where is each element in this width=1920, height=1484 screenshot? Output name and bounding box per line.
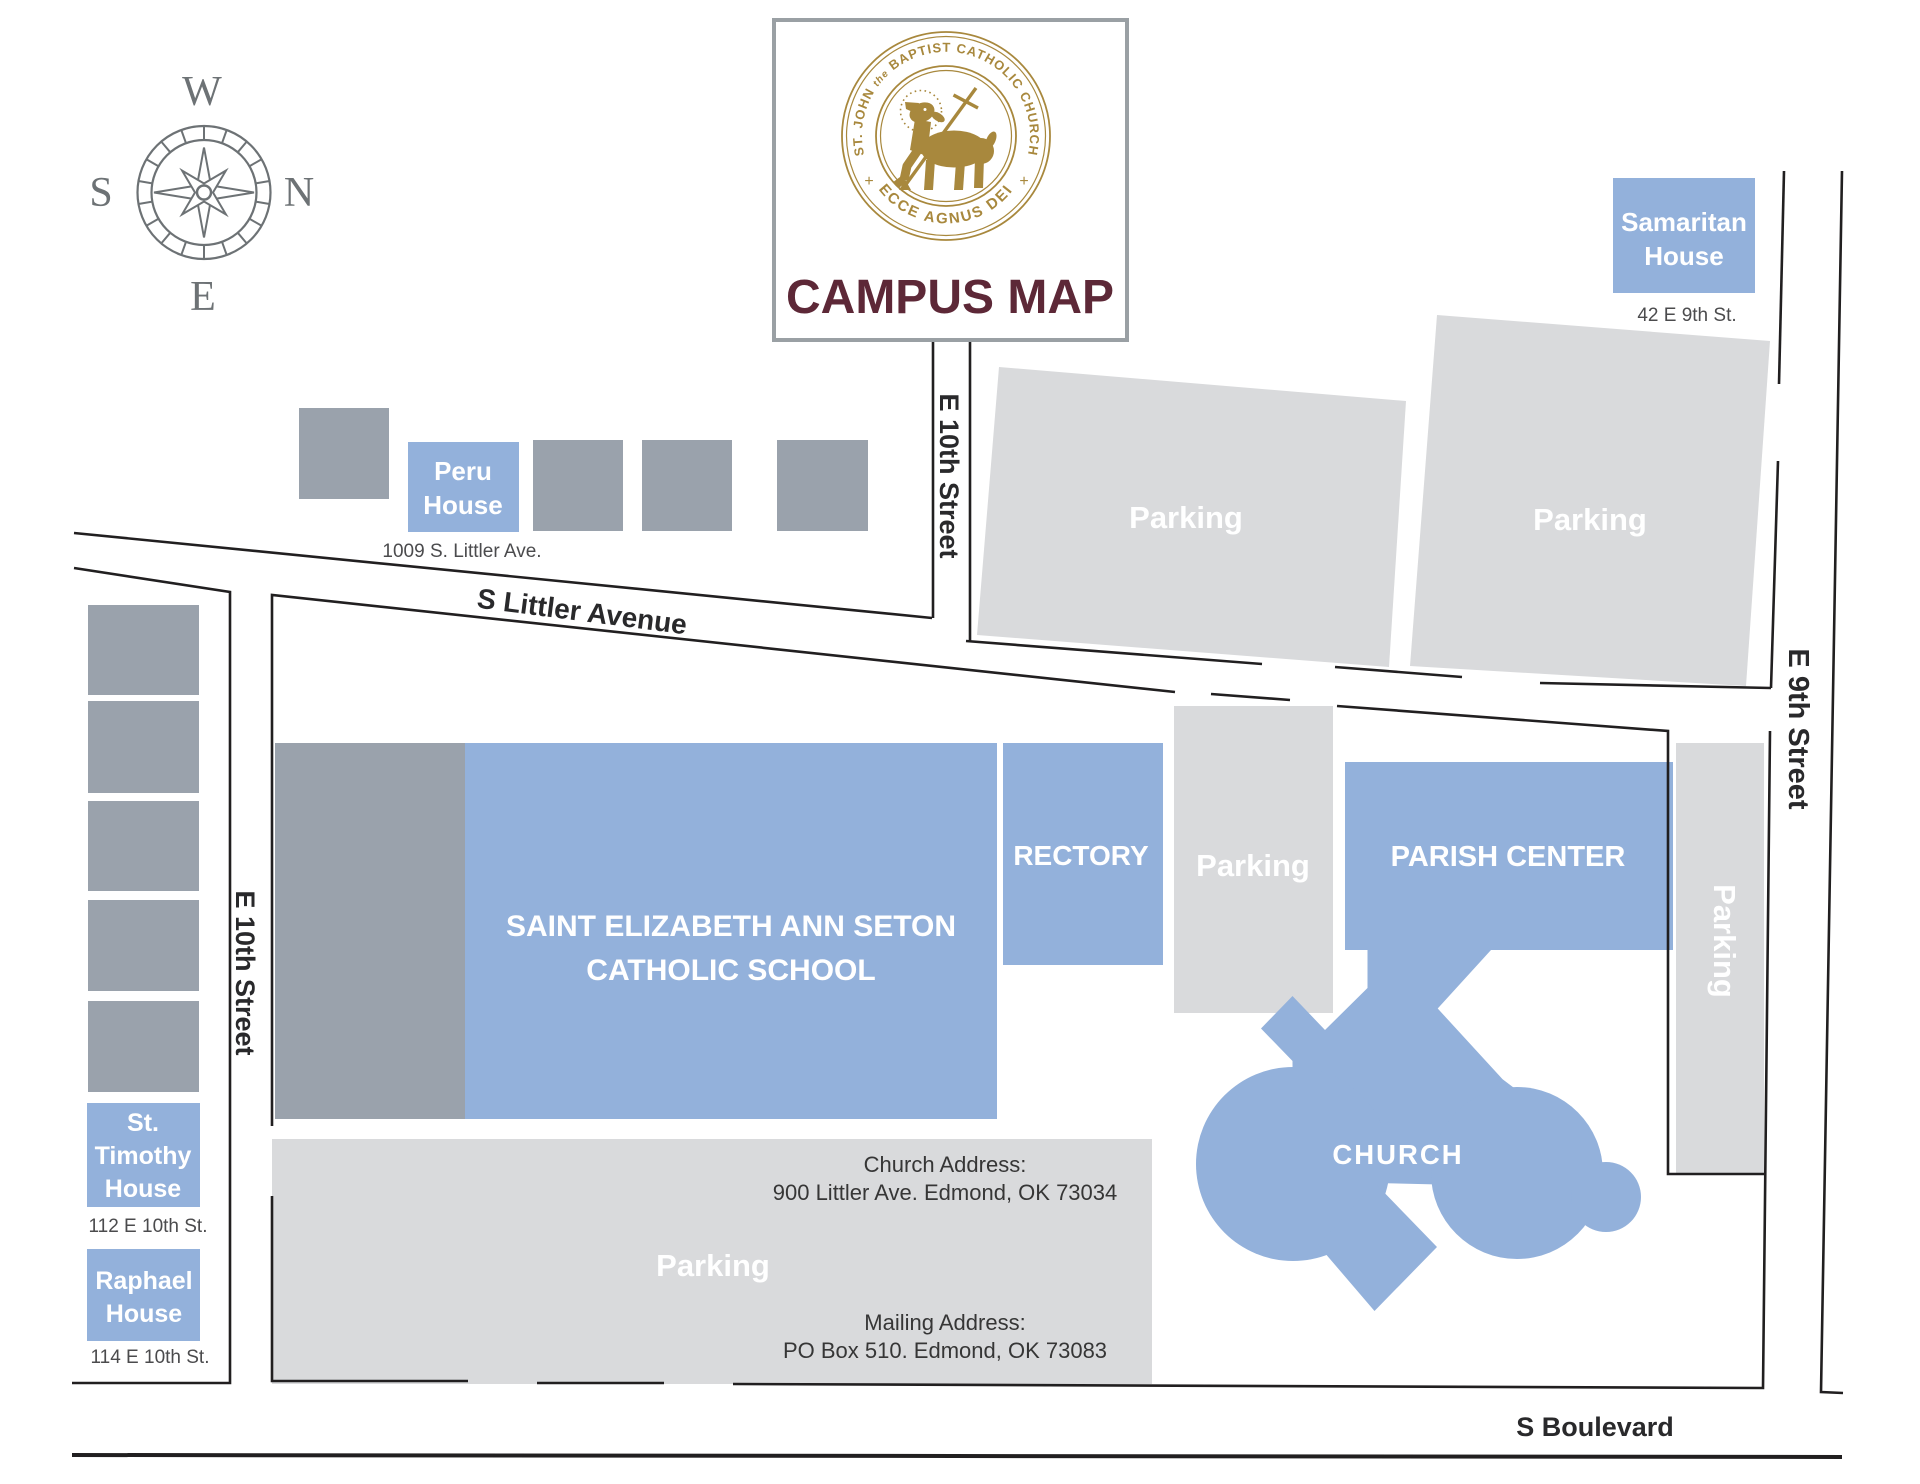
- svg-text:E 10th Street: E 10th Street: [934, 393, 964, 558]
- svg-text:1009 S. Littler Ave.: 1009 S. Littler Ave.: [382, 541, 541, 562]
- svg-text:N: N: [284, 170, 314, 216]
- svg-text:Church Address:: Church Address:: [864, 1152, 1027, 1177]
- svg-text:House: House: [423, 490, 502, 520]
- svg-text:900 Littler Ave. Edmond, OK 73: 900 Littler Ave. Edmond, OK 73034: [773, 1180, 1118, 1205]
- svg-text:Parking: Parking: [1707, 884, 1742, 998]
- svg-text:Samaritan: Samaritan: [1621, 207, 1747, 237]
- svg-text:Raphael: Raphael: [95, 1267, 192, 1295]
- svg-text:PO Box 510. Edmond, OK 73083: PO Box 510. Edmond, OK 73083: [783, 1338, 1107, 1363]
- svg-text:Parking: Parking: [1196, 848, 1310, 883]
- svg-text:114 E 10th St.: 114 E 10th St.: [90, 1347, 209, 1368]
- svg-text:Parking: Parking: [1129, 500, 1243, 535]
- svg-text:Peru: Peru: [434, 456, 492, 486]
- svg-text:CATHOLIC SCHOOL: CATHOLIC SCHOOL: [586, 954, 875, 987]
- svg-text:CAMPUS MAP: CAMPUS MAP: [786, 271, 1114, 324]
- svg-text:E 10th Street: E 10th Street: [230, 890, 260, 1055]
- svg-text:SAINT ELIZABETH ANN SETON: SAINT ELIZABETH ANN SETON: [506, 910, 956, 943]
- svg-text:St.: St.: [127, 1109, 159, 1137]
- svg-text:Mailing Address:: Mailing Address:: [864, 1310, 1025, 1335]
- svg-text:E 9th Street: E 9th Street: [1782, 648, 1814, 809]
- svg-text:S Boulevard: S Boulevard: [1516, 1412, 1674, 1442]
- svg-text:PARISH CENTER: PARISH CENTER: [1391, 841, 1626, 873]
- svg-text:House: House: [105, 1175, 182, 1203]
- svg-text:W: W: [182, 69, 222, 115]
- svg-text:Parking: Parking: [656, 1248, 770, 1283]
- svg-text:E: E: [190, 274, 216, 320]
- svg-text:S: S: [89, 170, 112, 216]
- svg-text:+: +: [864, 173, 873, 190]
- svg-text:+: +: [1019, 173, 1028, 190]
- svg-text:CHURCH: CHURCH: [1332, 1139, 1463, 1170]
- svg-text:112 E 10th St.: 112 E 10th St.: [88, 1216, 207, 1237]
- svg-text:Timothy: Timothy: [95, 1142, 192, 1170]
- svg-text:Parking: Parking: [1533, 502, 1647, 537]
- svg-text:RECTORY: RECTORY: [1013, 840, 1149, 871]
- svg-text:House: House: [106, 1300, 183, 1328]
- svg-text:House: House: [1644, 241, 1723, 271]
- svg-text:42 E 9th St.: 42 E 9th St.: [1637, 305, 1736, 326]
